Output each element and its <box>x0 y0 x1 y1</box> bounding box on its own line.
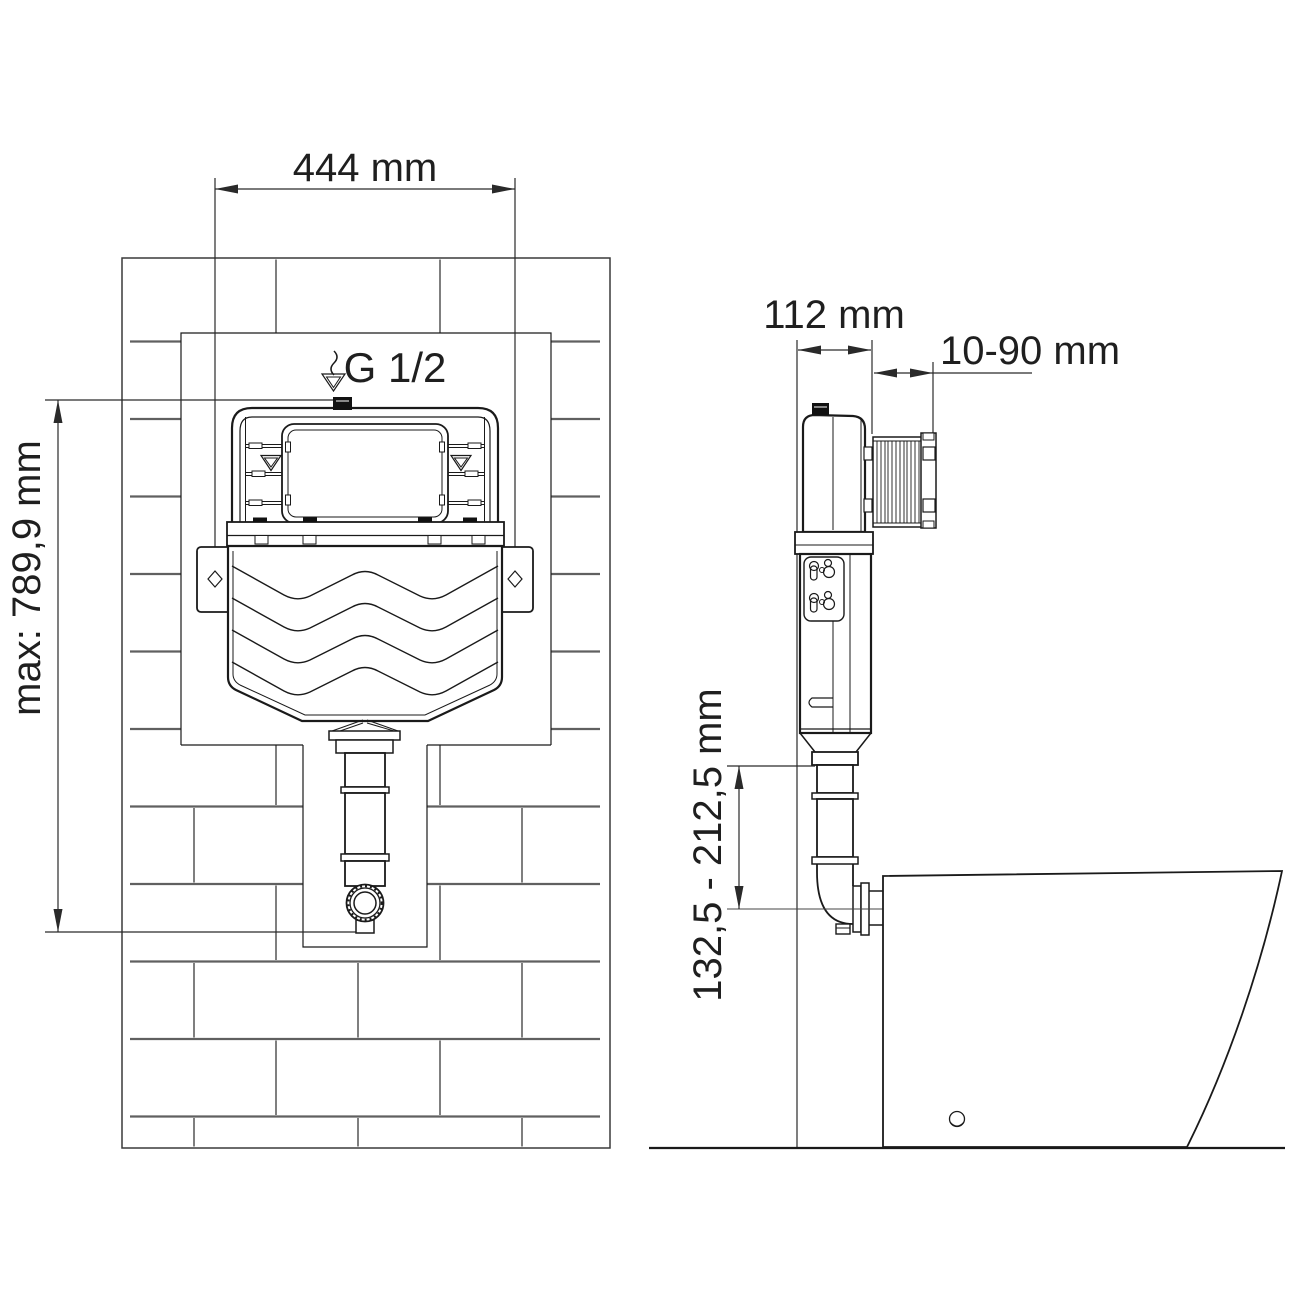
inlet-label: G 1/2 <box>344 344 447 391</box>
pipe-ring <box>812 793 858 799</box>
flange-tab <box>418 518 432 523</box>
dimension-panel-range: 10-90 mm <box>874 329 1120 433</box>
face-plate-clip <box>923 499 935 512</box>
side-flange <box>795 532 873 554</box>
side-cistern-body <box>795 403 936 752</box>
dim-height-label: max: 789,9 mm <box>5 440 49 716</box>
flange-tab <box>253 518 267 523</box>
arrow-left-icon <box>874 369 897 378</box>
technical-drawing-canvas: 444 mm max: 789,9 mm G 1/2 <box>0 0 1300 1300</box>
cistern-tank <box>228 546 502 721</box>
upper-body <box>803 415 865 532</box>
inlet-stub <box>333 397 352 410</box>
arrow-left-icon <box>215 185 238 194</box>
dim-width-label: 444 mm <box>293 146 438 190</box>
flange-notch <box>472 536 485 545</box>
inlet-cap <box>812 403 829 415</box>
dim-depth-label: 112 mm <box>763 293 905 337</box>
ladder-tab <box>468 500 481 506</box>
access-window <box>282 424 448 523</box>
pipe-segment <box>345 861 385 886</box>
flange-band <box>227 522 504 546</box>
arrow-left-icon <box>798 346 821 355</box>
face-plate-clip <box>923 447 935 460</box>
arrow-up-icon <box>735 766 744 789</box>
arrow-right-icon <box>910 369 933 378</box>
arrow-up-icon <box>54 400 63 423</box>
valve-collar <box>329 731 400 740</box>
pipe-segment <box>345 793 385 854</box>
arrow-down-icon <box>54 909 63 932</box>
ladder-tab <box>252 471 265 477</box>
front-view: 444 mm max: 789,9 mm G 1/2 <box>5 146 610 1148</box>
side-view: 112 mm 10-90 mm <box>649 293 1285 1148</box>
outlet-spigot <box>869 891 884 925</box>
pipe-segment <box>817 799 853 857</box>
body-clip <box>864 499 872 512</box>
window-clip <box>286 495 291 505</box>
tank-outer <box>228 546 502 721</box>
dimension-outlet-height: 132,5 - 212,5 mm <box>686 688 815 1002</box>
flange-notch <box>303 536 316 545</box>
ladder-tab <box>465 471 478 477</box>
ladder-tab <box>249 443 262 449</box>
elbow-outlet-inner <box>354 892 376 914</box>
window-clip <box>440 495 445 505</box>
ladder-tab <box>468 443 481 449</box>
pipe-segment <box>817 765 853 793</box>
cistern-flange <box>227 518 504 547</box>
body-clip <box>864 447 872 460</box>
arrow-down-icon <box>735 886 744 909</box>
flange-tab <box>463 518 477 523</box>
dim-panel-range-label: 10-90 mm <box>940 329 1120 373</box>
arrow-right-icon <box>848 346 871 355</box>
pipe-collar <box>812 752 858 765</box>
pipe-ring <box>341 854 389 861</box>
flange-tab <box>303 518 317 523</box>
window-clip <box>440 442 445 452</box>
elbow <box>817 864 853 924</box>
toilet-pan <box>883 871 1282 1147</box>
toilet-outline <box>883 871 1282 1147</box>
pipe-segment <box>345 753 385 787</box>
elbow-drain-tab <box>836 924 850 934</box>
face-plate-tab <box>923 433 934 440</box>
pipe-ring <box>812 857 858 864</box>
dim-outlet-height-label: 132,5 - 212,5 mm <box>686 688 730 1002</box>
arrow-right-icon <box>492 185 515 194</box>
pipe-ring <box>341 787 389 793</box>
valve-flange <box>336 740 393 753</box>
dimension-depth: 112 mm <box>763 293 905 434</box>
flange-notch <box>255 536 268 545</box>
ladder-tab <box>249 500 262 506</box>
window-clip <box>286 442 291 452</box>
face-plate-tab <box>923 521 934 528</box>
body-taper <box>800 733 871 752</box>
installation-drawing-page: 444 mm max: 789,9 mm G 1/2 <box>0 0 1300 1300</box>
flange-notch <box>428 536 441 545</box>
